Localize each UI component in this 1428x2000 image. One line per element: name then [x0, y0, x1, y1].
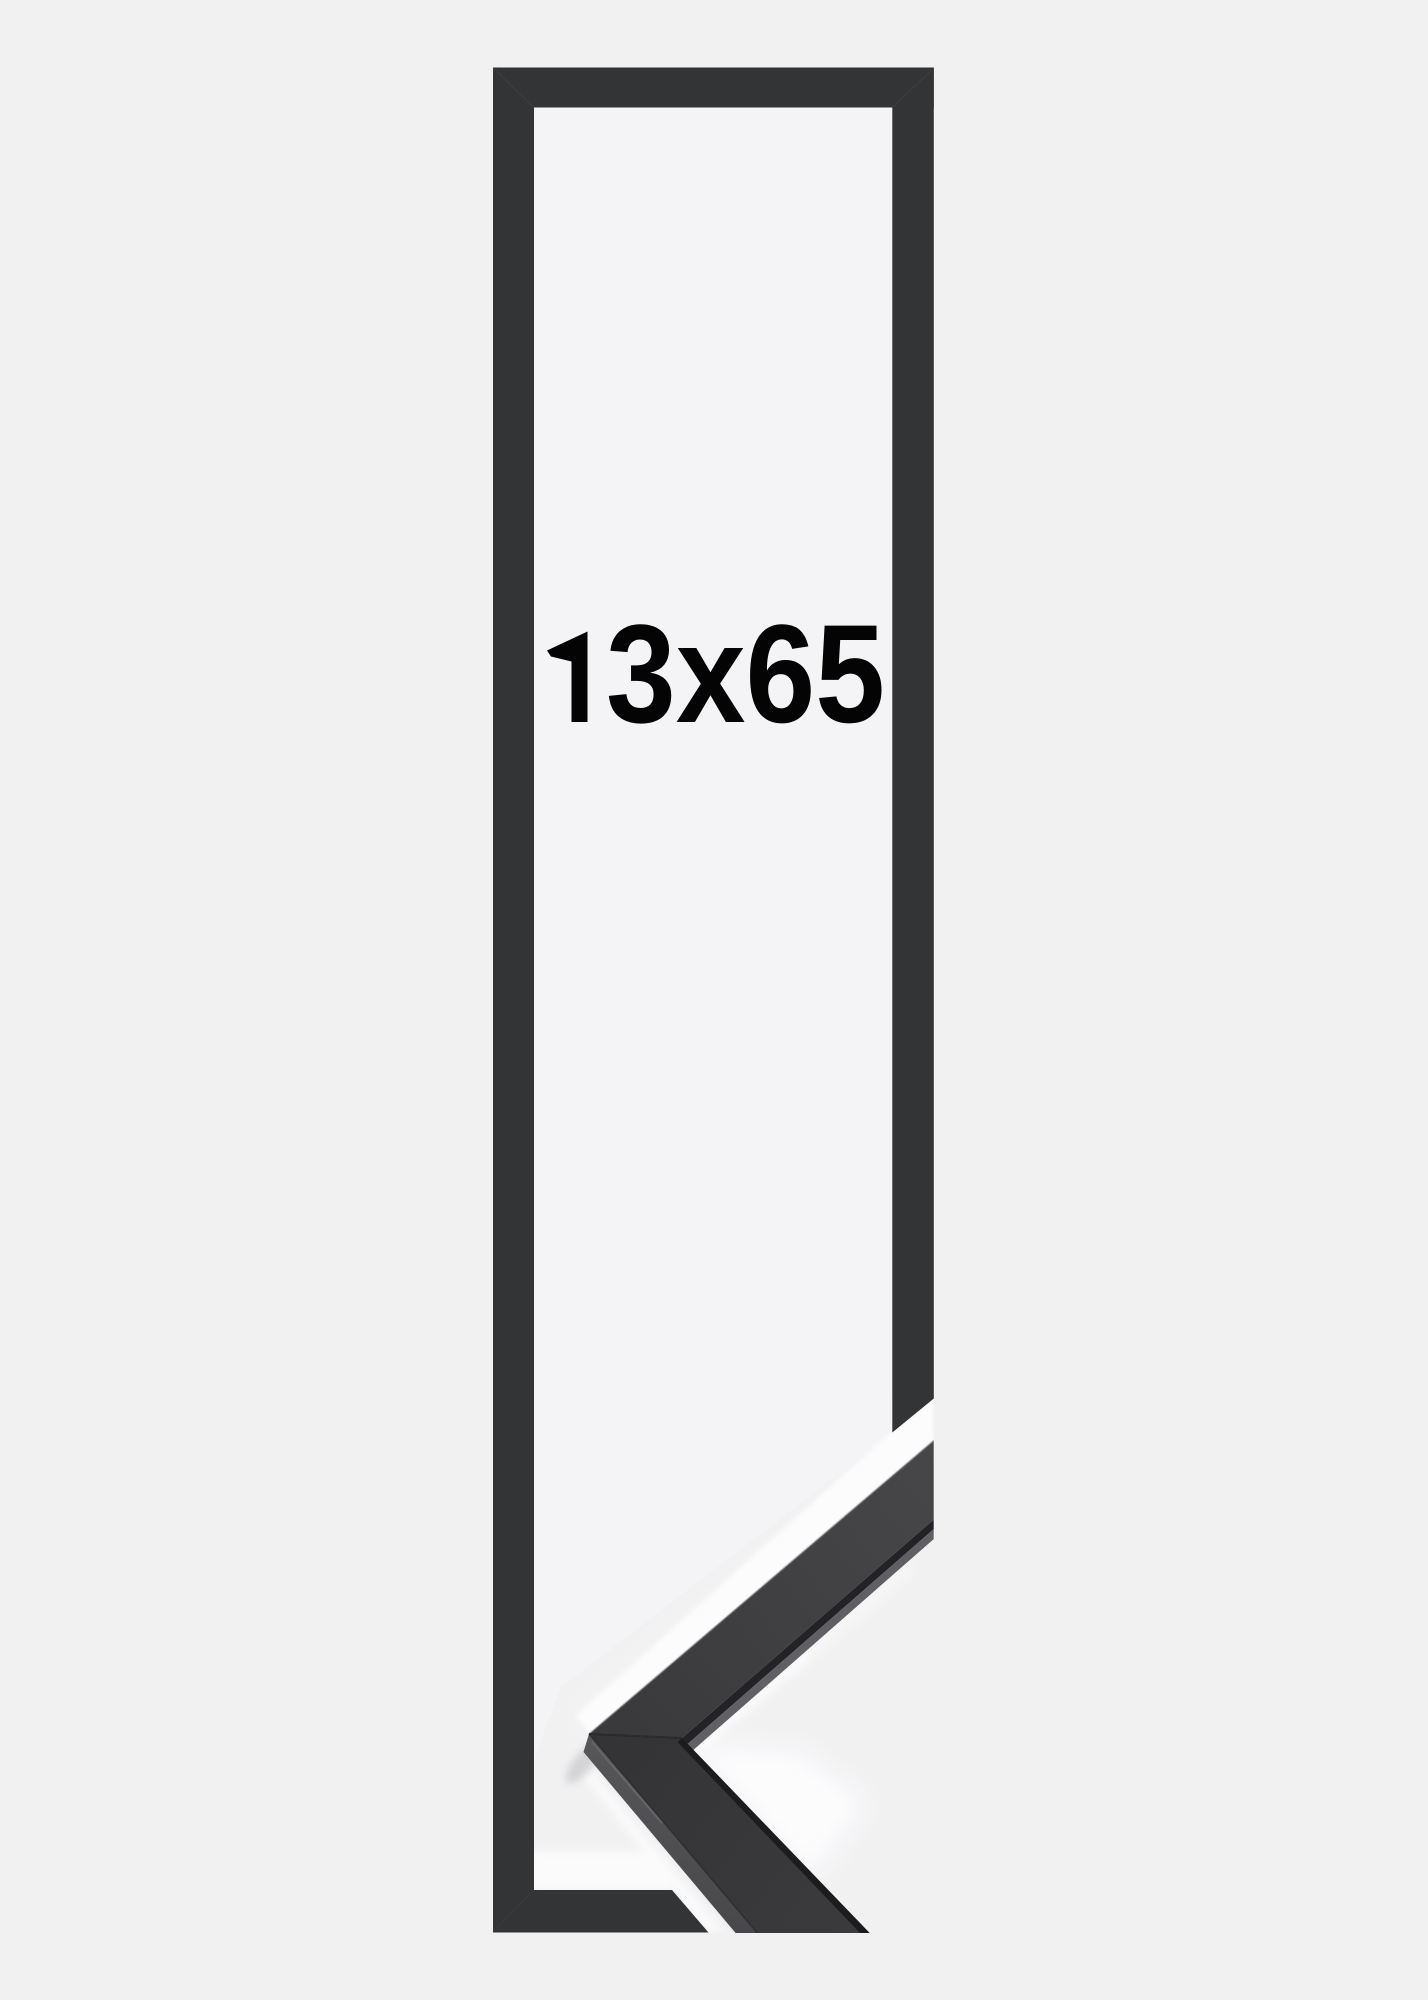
svg-text:3x65: 3x65: [606, 595, 885, 752]
